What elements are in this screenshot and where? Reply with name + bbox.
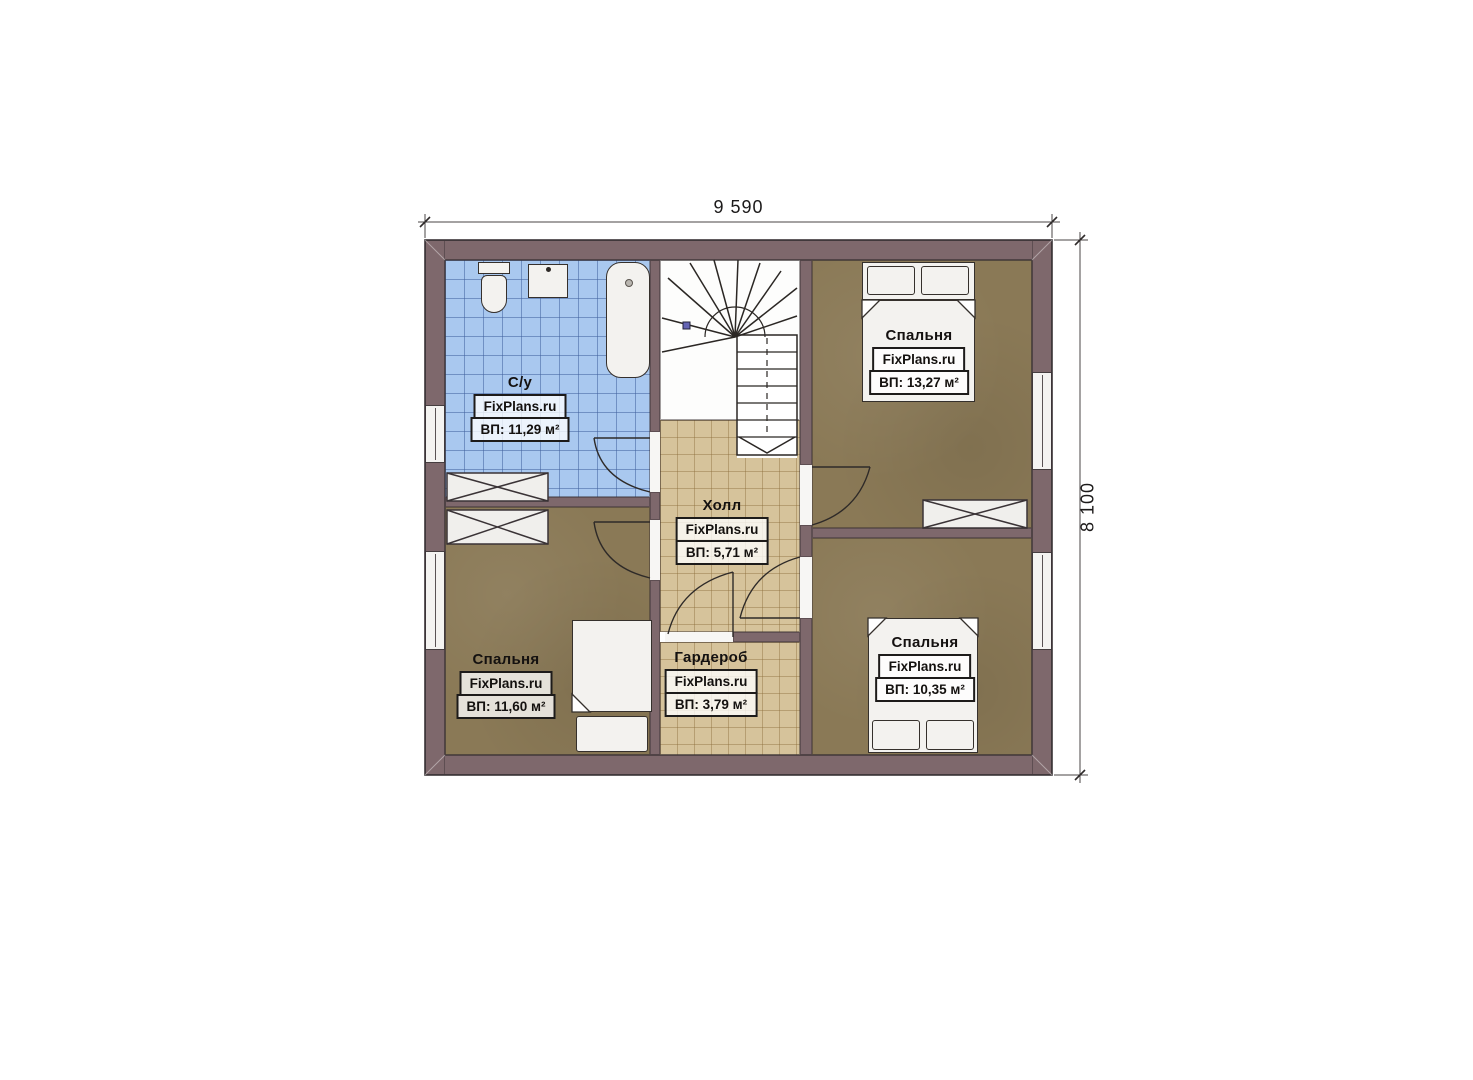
watermark-box: FixPlans.ru [665,669,758,694]
door-opening-wardrobe [665,632,733,642]
room-name: Спальня [886,327,953,344]
wall-bedrooms-right-divider [812,528,1032,538]
bed-single-bottom-left [572,620,652,712]
pillow [576,716,648,752]
room-name: Холл [703,497,742,514]
pillow [921,266,969,295]
wall-hall-wardrobe [733,632,800,642]
area-box: ВП: 5,71 м² [676,540,768,565]
room-name: Спальня [892,634,959,651]
toilet-bowl [481,275,507,313]
window-left-lower [425,551,445,650]
dimension-height-label: 8 100 [1078,482,1099,532]
room-name: Гардероб [674,649,747,666]
wall-top [425,240,1052,260]
room-name: Спальня [473,651,540,668]
room-stairwell-floor [660,260,800,420]
area-box: ВП: 11,29 м² [471,417,570,442]
room-label-bedroom-top-right: Спальня FixPlans.ru ВП: 13,27 м² [869,327,969,395]
pillow [872,720,920,750]
room-label-wardrobe: Гардероб FixPlans.ru ВП: 3,79 м² [665,649,758,717]
door-opening-bedroom-top-right [800,465,812,525]
wall-hall-left-mid [650,492,660,520]
watermark-box: FixPlans.ru [873,347,966,372]
door-opening-bedroom-bottom-right [800,557,812,618]
wall-bathroom-bedroom [445,497,650,507]
watermark-box: FixPlans.ru [879,654,972,679]
window-right-lower [1032,552,1052,650]
door-opening-bathroom [650,432,660,492]
wall-bottom [425,755,1052,775]
toilet-tank [478,262,510,274]
pillow [867,266,915,295]
wall-left [425,240,445,775]
wall-right [1032,240,1052,775]
room-name: С/у [508,374,532,391]
dimension-width-label: 9 590 [425,197,1052,218]
area-box: ВП: 10,35 м² [875,677,975,702]
wall-hall-right-top [800,260,812,465]
window-left-upper [425,405,445,463]
door-opening-bedroom-bottom-left [650,520,660,580]
area-box: ВП: 11,60 м² [457,694,556,719]
watermark-box: FixPlans.ru [460,671,553,696]
watermark-box: FixPlans.ru [676,517,769,542]
watermark-box: FixPlans.ru [474,394,567,419]
room-label-bathroom: С/у FixPlans.ru ВП: 11,29 м² [471,374,570,442]
wall-hall-right-mid [800,525,812,557]
window-right-upper [1032,372,1052,470]
bathtub [606,262,650,378]
area-box: ВП: 13,27 м² [869,370,969,395]
room-label-bedroom-bottom-right: Спальня FixPlans.ru ВП: 10,35 м² [875,634,975,702]
wall-hall-right-low [800,618,812,755]
area-box: ВП: 3,79 м² [665,692,757,717]
sink [528,264,568,298]
room-label-bedroom-bottom-left: Спальня FixPlans.ru ВП: 11,60 м² [457,651,556,719]
wall-bathroom-stair [650,260,660,432]
floor-plan-canvas: С/у FixPlans.ru ВП: 11,29 м² Холл FixPla… [0,0,1473,1080]
room-label-hall: Холл FixPlans.ru ВП: 5,71 м² [676,497,769,565]
stair-flight-extension [737,420,797,458]
pillow [926,720,974,750]
